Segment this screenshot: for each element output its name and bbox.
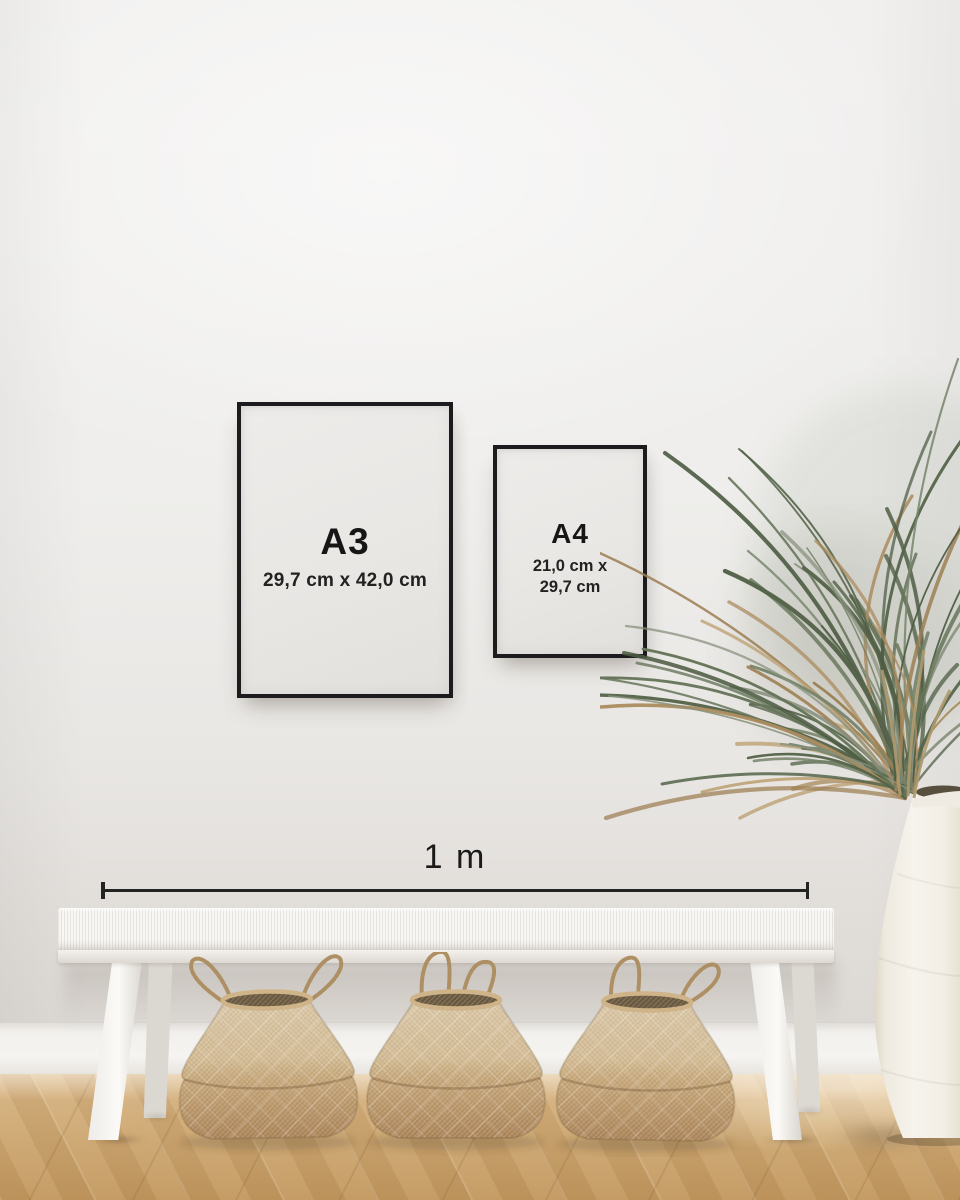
a4-size-label: A4	[551, 519, 589, 550]
palm-plant	[600, 310, 960, 830]
basket-2	[367, 952, 545, 1138]
a4-dimensions-line1: 21,0 cm x	[533, 556, 607, 577]
scale-line	[102, 889, 808, 892]
seagrass-baskets	[140, 952, 760, 1157]
bench-seat	[58, 908, 834, 952]
a4-dimensions: 21,0 cm x 29,7 cm	[533, 556, 607, 597]
basket-1	[177, 956, 358, 1140]
scale-label: 1 m	[355, 838, 555, 877]
a3-dimensions: 29,7 cm x 42,0 cm	[263, 570, 427, 592]
scale-tick-right	[806, 882, 810, 899]
scale-tick-left	[101, 882, 105, 899]
frame-a3: A3 29,7 cm x 42,0 cm	[237, 402, 453, 698]
ceramic-vase	[845, 778, 960, 1150]
basket-3	[556, 956, 737, 1141]
poster-a3: A3 29,7 cm x 42,0 cm	[241, 406, 449, 694]
a3-size-label: A3	[320, 522, 369, 563]
vase-body	[875, 790, 960, 1138]
poster-size-guide-scene: A3 29,7 cm x 42,0 cm A4 21,0 cm x 29,7 c…	[0, 0, 960, 1200]
a4-dimensions-line2: 29,7 cm	[533, 577, 607, 598]
